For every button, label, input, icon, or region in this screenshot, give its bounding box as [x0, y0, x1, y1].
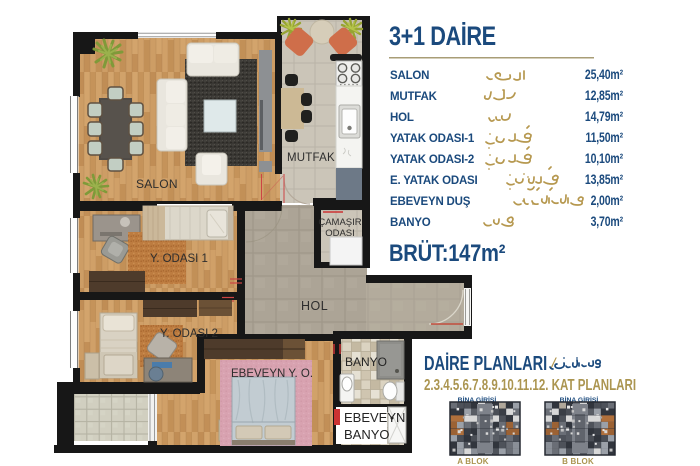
svg-text:25,40m²: 25,40m² — [585, 67, 623, 83]
svg-text:MUTFAK: MUTFAK — [390, 91, 438, 103]
svg-text:EBEVEYN Y. O.: EBEVEYN Y. O. — [231, 368, 313, 380]
svg-text:Y. ODASI 1: Y. ODASI 1 — [150, 253, 208, 265]
svg-text:2.3.4.5.6.7.8.9.10.11.12. KAT: 2.3.4.5.6.7.8.9.10.11.12. KAT PLANLARI — [424, 376, 636, 393]
svg-text:3,70m²: 3,70m² — [591, 214, 624, 230]
svg-text:Y. ODASI 2: Y. ODASI 2 — [160, 328, 218, 340]
svg-text:EBEVEYN DUŞ: EBEVEYN DUŞ — [390, 196, 471, 208]
svg-text:11,50m²: 11,50m² — [585, 130, 623, 146]
svg-text:ÇAMAŞIR: ÇAMAŞIR — [318, 217, 361, 228]
svg-text:13,85m²: 13,85m² — [585, 172, 623, 188]
svg-text:DAİRE PLANLARI: DAİRE PLANLARI — [424, 352, 547, 375]
svg-text:SALON: SALON — [390, 70, 429, 82]
svg-text:B BLOK: B BLOK — [562, 457, 594, 466]
svg-text:YATAK ODASI-2: YATAK ODASI-2 — [390, 154, 474, 166]
svg-text:SALON: SALON — [136, 177, 178, 191]
svg-text:BANYO: BANYO — [390, 217, 431, 229]
svg-text:ODASI: ODASI — [325, 228, 355, 239]
svg-text:BRÜT:147m²: BRÜT:147m² — [389, 239, 505, 266]
svg-text:HOL: HOL — [390, 112, 414, 124]
svg-text:2,00m²: 2,00m² — [591, 193, 624, 209]
svg-text:14,79m²: 14,79m² — [585, 109, 623, 125]
svg-text:BANYO: BANYO — [344, 427, 390, 442]
svg-text:10,10m²: 10,10m² — [585, 151, 623, 167]
svg-text:MUTFAK: MUTFAK — [287, 152, 335, 164]
svg-text:E. YATAK ODASI: E. YATAK ODASI — [390, 175, 478, 187]
svg-text:YATAK ODASI-1: YATAK ODASI-1 — [390, 133, 475, 145]
svg-text:BANYO: BANYO — [345, 355, 387, 369]
svg-text:3+1 DAİRE: 3+1 DAİRE — [389, 22, 496, 52]
svg-text:A BLOK: A BLOK — [457, 457, 489, 466]
svg-text:HOL: HOL — [301, 299, 328, 313]
svg-text:EBEVEYN: EBEVEYN — [344, 410, 405, 425]
svg-text:12,85m²: 12,85m² — [585, 88, 623, 104]
